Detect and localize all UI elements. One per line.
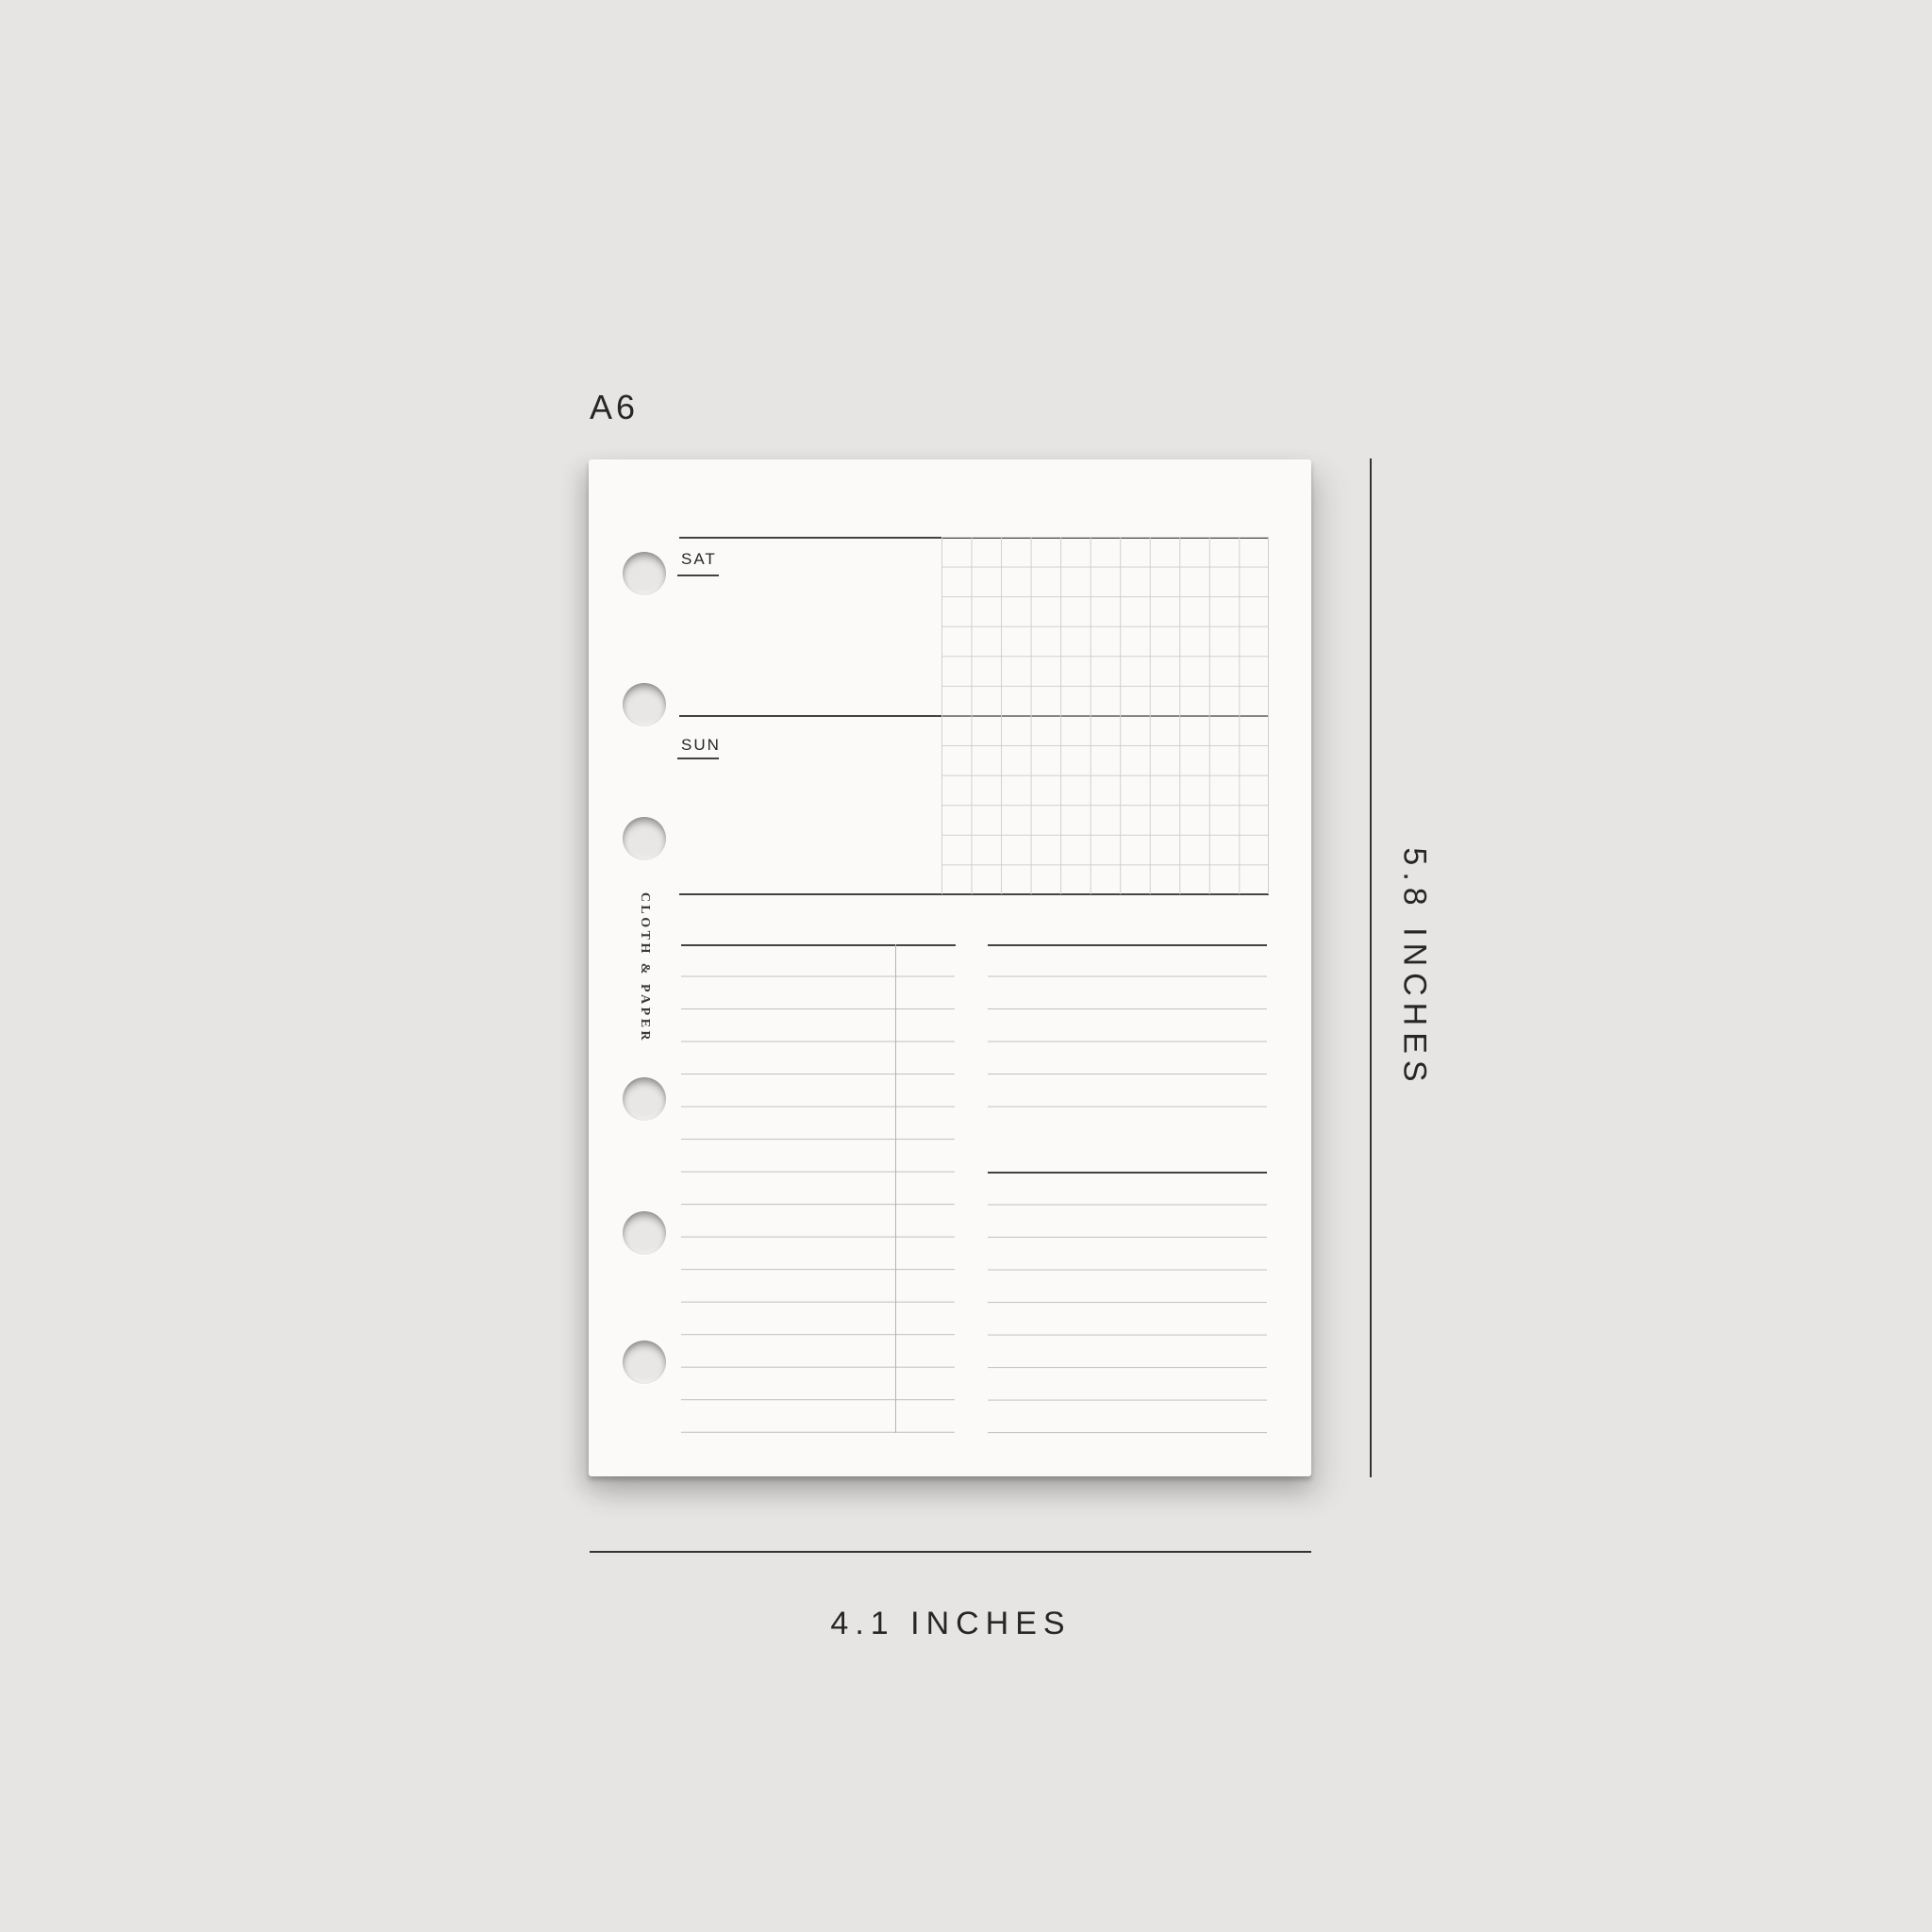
punch-hole <box>623 552 666 595</box>
punch-hole <box>623 1211 666 1255</box>
left-column-vertical-divider <box>895 944 896 1433</box>
height-dimension-label: 5.8 INCHES <box>1396 847 1433 1088</box>
sun-label-underline <box>677 758 719 759</box>
left-column-ruled-lines <box>681 944 955 1433</box>
size-label: A6 <box>590 391 639 425</box>
punch-hole <box>623 817 666 860</box>
brand-vertical-text: CLOTH & PAPER <box>637 892 652 1043</box>
punch-hole <box>623 683 666 726</box>
product-mockup: A6 SAT SUN CLOTH & PAPER 5.8 INCHES 4.1 … <box>0 0 1932 1932</box>
planner-page: SAT SUN CLOTH & PAPER <box>589 459 1311 1476</box>
sat-label-underline <box>677 575 719 576</box>
width-dimension-label: 4.1 INCHES <box>830 1606 1071 1642</box>
day-label-sat: SAT <box>681 551 717 568</box>
right-column-ruled-lines-bottom <box>988 1173 1267 1434</box>
right-column-ruled-lines-top <box>988 944 1267 1108</box>
height-dimension-line <box>1370 458 1372 1477</box>
width-dimension-line <box>590 1551 1311 1553</box>
day-label-sun: SUN <box>681 737 721 754</box>
weekend-writing-grid <box>941 537 1269 894</box>
punch-hole <box>623 1077 666 1121</box>
punch-hole <box>623 1341 666 1384</box>
